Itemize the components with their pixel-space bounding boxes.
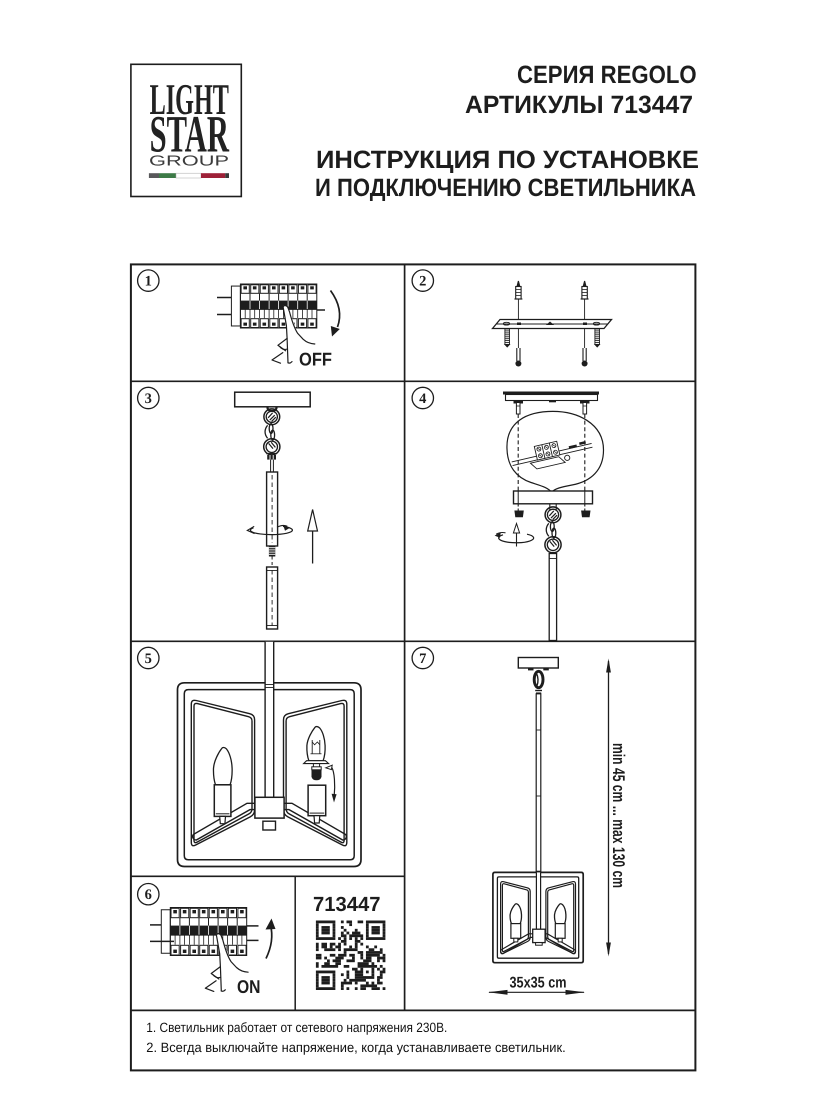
svg-text:И ПОДКЛЮЧЕНИЮ СВЕТИЛЬНИКА: И ПОДКЛЮЧЕНИЮ СВЕТИЛЬНИКА bbox=[315, 174, 696, 202]
svg-text:4: 4 bbox=[419, 391, 426, 407]
svg-text:2: 2 bbox=[419, 274, 426, 290]
svg-text:2. Всегда выключайте напряжени: 2. Всегда выключайте напряжение, когда у… bbox=[146, 1040, 565, 1055]
svg-text:5: 5 bbox=[145, 651, 152, 667]
svg-text:1: 1 bbox=[145, 274, 152, 290]
svg-text:OFF: OFF bbox=[299, 349, 332, 370]
svg-text:7: 7 bbox=[419, 651, 426, 667]
svg-text:3: 3 bbox=[145, 391, 152, 407]
svg-text:СЕРИЯ REGOLO: СЕРИЯ REGOLO bbox=[517, 61, 697, 89]
svg-text:АРТИКУЛЫ 713447: АРТИКУЛЫ 713447 bbox=[465, 91, 693, 119]
svg-text:min 45 cm ... max 130 cm: min 45 cm ... max 130 cm bbox=[609, 743, 628, 888]
svg-text:35x35 cm: 35x35 cm bbox=[510, 975, 567, 992]
svg-text:ИНСТРУКЦИЯ ПО УСТАНОВКЕ: ИНСТРУКЦИЯ ПО УСТАНОВКЕ bbox=[316, 146, 699, 174]
svg-text:ON: ON bbox=[237, 976, 261, 997]
svg-text:GROUP: GROUP bbox=[149, 154, 229, 170]
svg-text:1. Светильник работает от сете: 1. Светильник работает от сетевого напря… bbox=[146, 1020, 447, 1035]
svg-text:6: 6 bbox=[145, 887, 152, 903]
svg-text:713447: 713447 bbox=[313, 893, 381, 916]
